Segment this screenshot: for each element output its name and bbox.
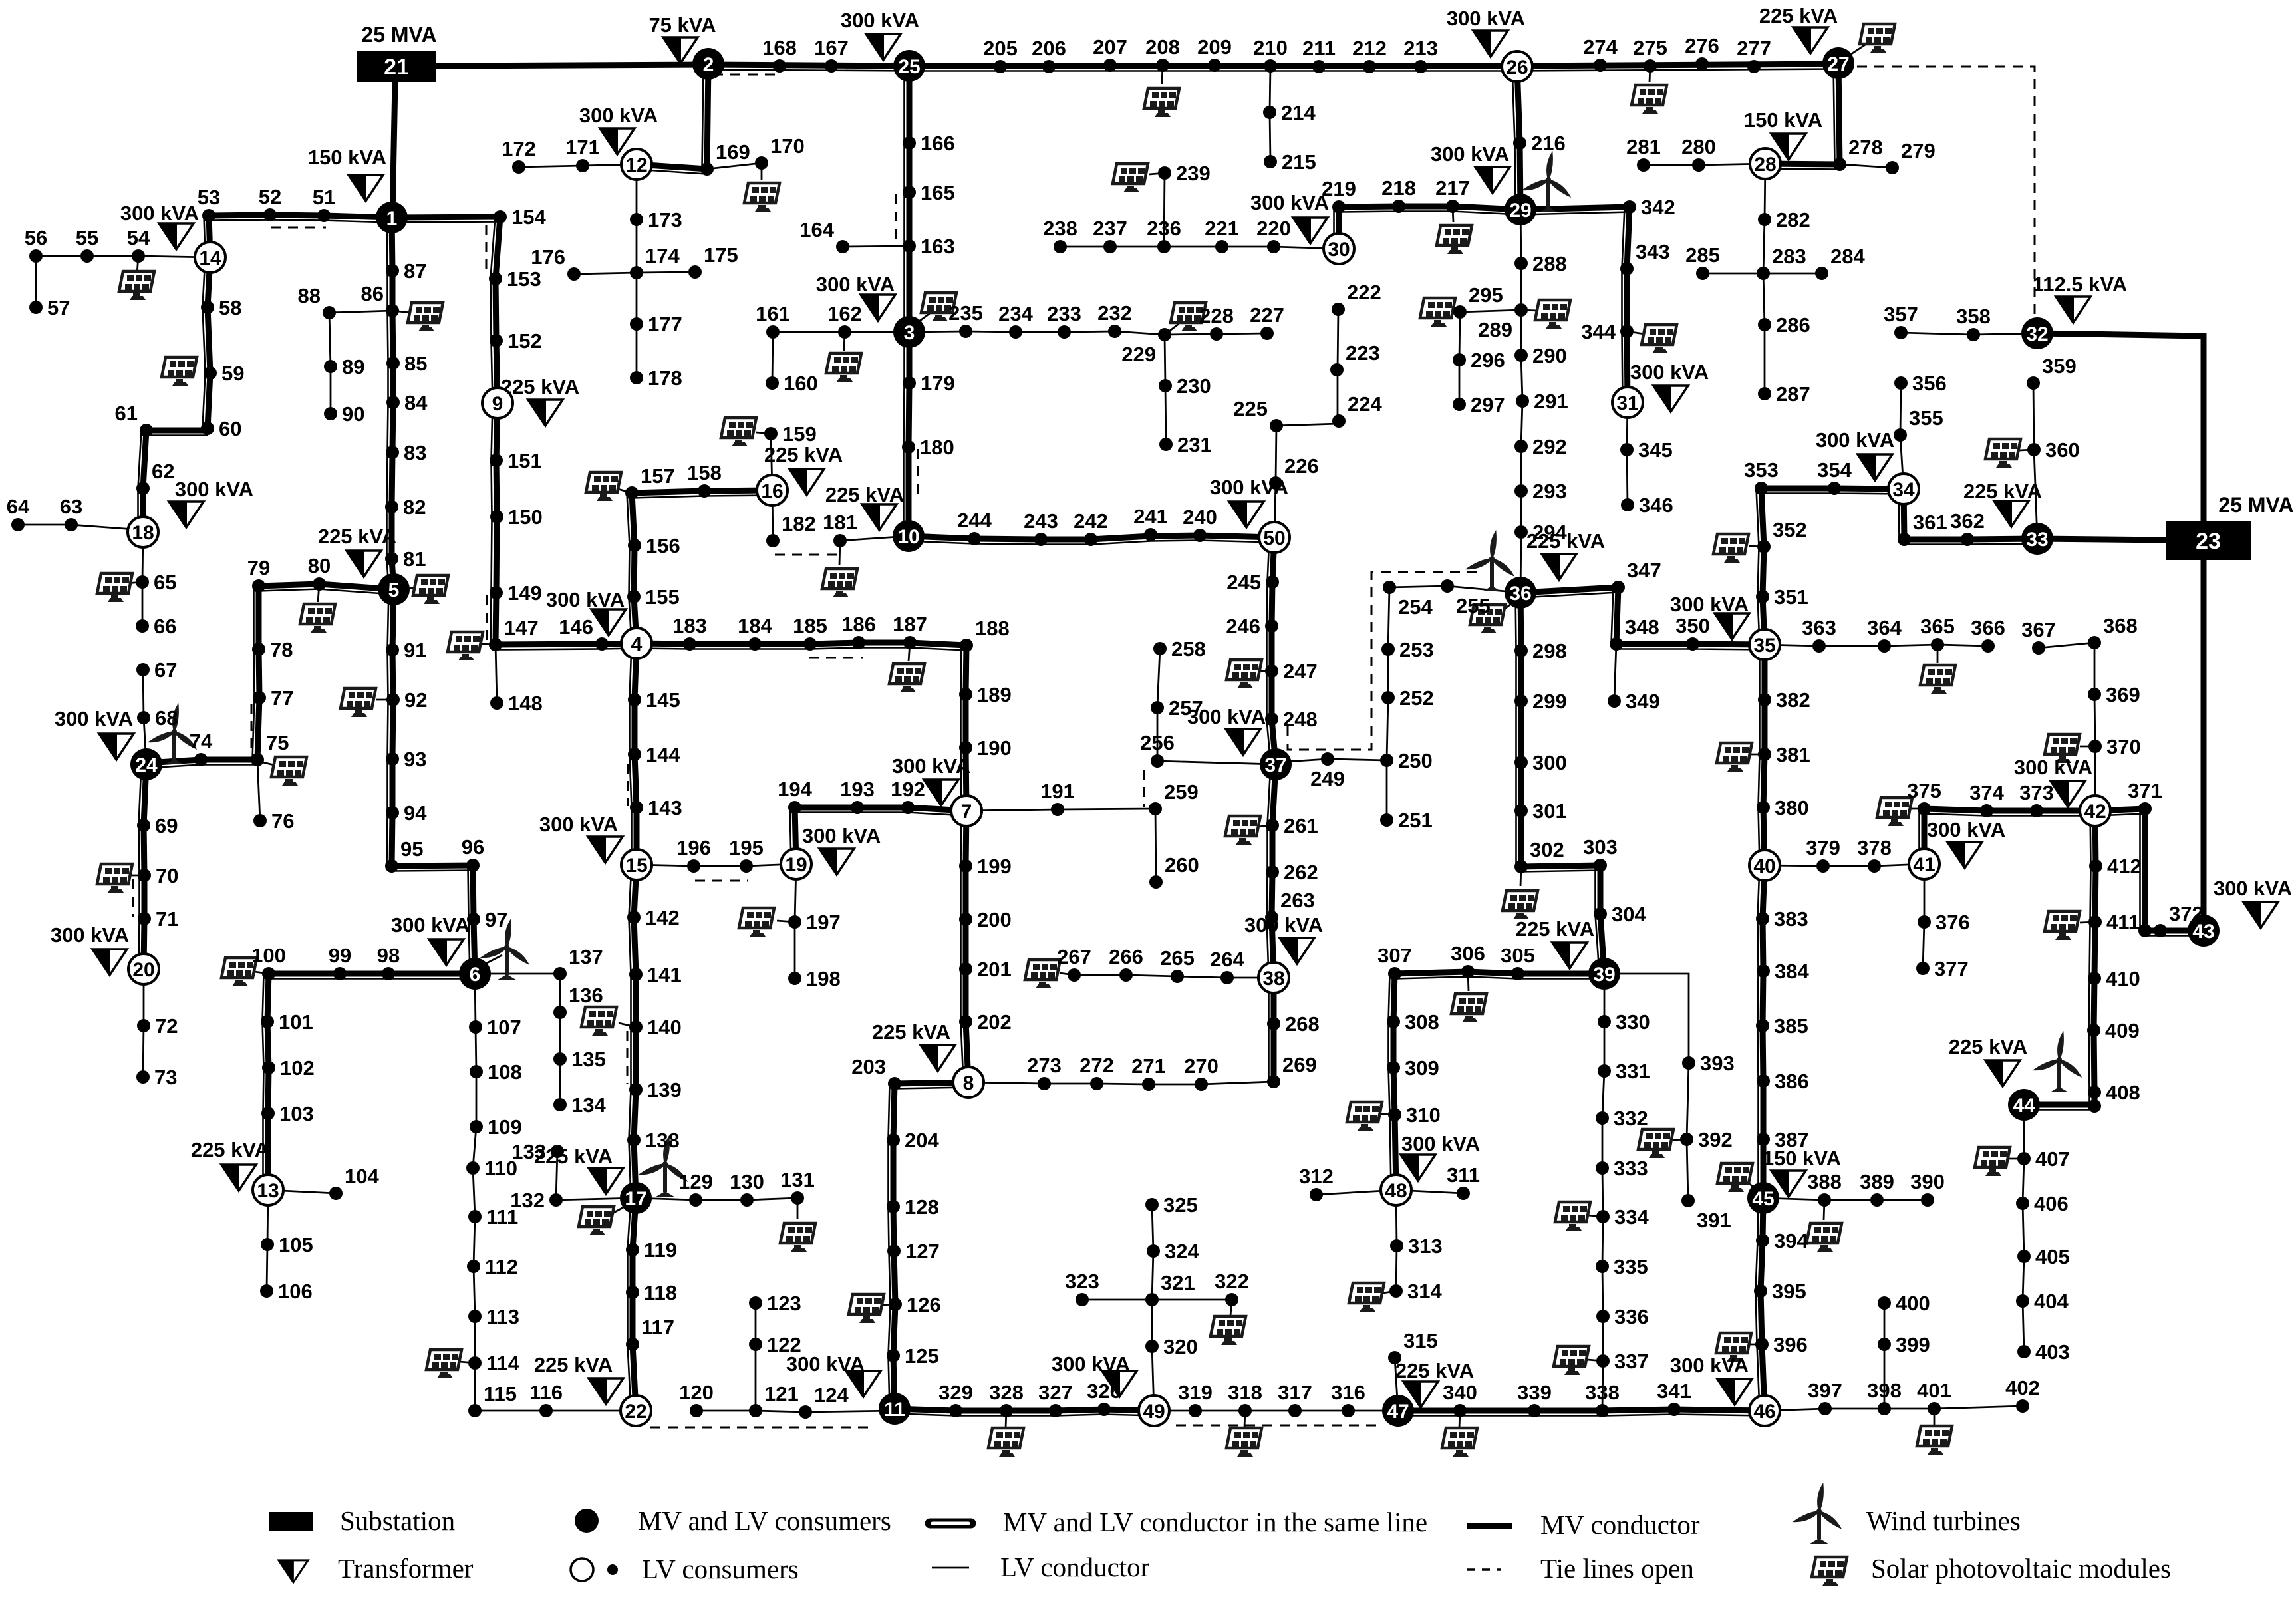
svg-text:59: 59 — [221, 362, 244, 385]
svg-text:169: 169 — [716, 140, 750, 164]
svg-text:260: 260 — [1165, 853, 1199, 877]
svg-text:371: 371 — [2128, 779, 2162, 802]
svg-text:388: 388 — [1807, 1170, 1842, 1193]
svg-text:225 kVA: 225 kVA — [1949, 1035, 2027, 1058]
svg-text:102: 102 — [280, 1056, 315, 1080]
svg-text:276: 276 — [1685, 34, 1719, 57]
svg-text:134: 134 — [571, 1094, 606, 1117]
svg-text:75: 75 — [266, 731, 289, 754]
svg-text:262: 262 — [1284, 861, 1318, 884]
svg-text:202: 202 — [977, 1010, 1012, 1034]
svg-text:10: 10 — [897, 526, 919, 548]
svg-text:46: 46 — [1753, 1401, 1775, 1423]
svg-text:264: 264 — [1210, 948, 1244, 971]
svg-text:38: 38 — [1262, 968, 1284, 990]
svg-text:280: 280 — [1681, 135, 1716, 158]
svg-text:112: 112 — [485, 1255, 518, 1278]
svg-text:401: 401 — [1917, 1379, 1951, 1402]
svg-text:109: 109 — [488, 1115, 522, 1139]
svg-text:130: 130 — [730, 1170, 764, 1193]
svg-text:315: 315 — [1403, 1329, 1438, 1352]
svg-text:336: 336 — [1614, 1305, 1649, 1328]
svg-text:84: 84 — [404, 391, 428, 414]
svg-text:210: 210 — [1253, 36, 1288, 59]
svg-text:311: 311 — [1447, 1163, 1480, 1187]
svg-text:391: 391 — [1697, 1209, 1731, 1232]
svg-text:361: 361 — [1913, 511, 1947, 534]
svg-text:40: 40 — [1753, 855, 1775, 877]
svg-text:225 kVA: 225 kVA — [825, 483, 904, 506]
svg-text:207: 207 — [1093, 35, 1127, 59]
svg-text:286: 286 — [1776, 313, 1810, 337]
svg-text:363: 363 — [1802, 616, 1836, 639]
svg-text:200: 200 — [977, 908, 1012, 931]
svg-text:178: 178 — [648, 366, 682, 390]
svg-text:30: 30 — [1328, 239, 1350, 261]
svg-text:225 kVA: 225 kVA — [1516, 917, 1594, 941]
svg-text:225 kVA: 225 kVA — [534, 1353, 613, 1376]
svg-text:88: 88 — [298, 284, 321, 307]
svg-text:221: 221 — [1205, 217, 1239, 240]
svg-text:67: 67 — [154, 658, 177, 682]
svg-text:170: 170 — [770, 134, 805, 158]
svg-text:332: 332 — [1614, 1107, 1648, 1130]
svg-text:249: 249 — [1310, 767, 1345, 790]
svg-text:143: 143 — [648, 796, 682, 819]
svg-text:17: 17 — [625, 1188, 646, 1210]
svg-text:154: 154 — [511, 206, 546, 229]
svg-text:335: 335 — [1614, 1255, 1648, 1278]
svg-text:25 MVA: 25 MVA — [2218, 493, 2293, 517]
svg-text:33: 33 — [2026, 529, 2048, 551]
svg-text:225 kVA: 225 kVA — [1963, 480, 2042, 503]
svg-text:261: 261 — [1284, 814, 1318, 837]
svg-text:186: 186 — [841, 613, 876, 636]
svg-text:203: 203 — [851, 1055, 886, 1078]
svg-text:292: 292 — [1532, 435, 1567, 458]
svg-text:113: 113 — [486, 1305, 519, 1328]
svg-text:305: 305 — [1501, 944, 1535, 967]
svg-text:225 kVA: 225 kVA — [501, 375, 579, 398]
svg-text:297: 297 — [1471, 393, 1505, 416]
svg-text:217: 217 — [1435, 176, 1470, 200]
svg-text:24: 24 — [135, 754, 158, 776]
svg-text:47: 47 — [1387, 1401, 1409, 1423]
svg-text:69: 69 — [155, 814, 178, 837]
svg-text:197: 197 — [806, 911, 841, 934]
svg-text:205: 205 — [983, 37, 1018, 60]
svg-text:9: 9 — [492, 393, 503, 415]
svg-text:384: 384 — [1775, 960, 1809, 983]
svg-text:150 kVA: 150 kVA — [308, 146, 386, 169]
svg-text:65: 65 — [154, 571, 176, 594]
svg-text:158: 158 — [687, 461, 722, 484]
svg-text:220: 220 — [1256, 217, 1291, 240]
svg-text:157: 157 — [641, 464, 675, 488]
svg-text:247: 247 — [1283, 660, 1318, 683]
svg-text:6: 6 — [470, 964, 481, 986]
svg-text:329: 329 — [938, 1381, 973, 1404]
svg-text:86: 86 — [361, 282, 384, 305]
svg-text:104: 104 — [345, 1165, 379, 1188]
svg-text:152: 152 — [507, 329, 542, 353]
svg-text:242: 242 — [1074, 510, 1108, 533]
svg-text:7: 7 — [961, 801, 972, 823]
svg-text:108: 108 — [488, 1060, 522, 1084]
svg-text:346: 346 — [1639, 494, 1673, 517]
svg-text:411: 411 — [2106, 911, 2140, 934]
svg-text:56: 56 — [25, 226, 47, 249]
svg-text:25: 25 — [898, 56, 920, 78]
svg-text:273: 273 — [1027, 1054, 1062, 1077]
svg-text:370: 370 — [2106, 735, 2141, 758]
svg-text:171: 171 — [565, 136, 600, 159]
svg-text:269: 269 — [1282, 1053, 1317, 1076]
svg-text:37: 37 — [1264, 754, 1286, 776]
svg-text:300 kVA: 300 kVA — [120, 202, 199, 225]
svg-text:32: 32 — [2026, 323, 2048, 345]
svg-text:201: 201 — [977, 958, 1012, 981]
svg-text:98: 98 — [377, 944, 400, 967]
svg-text:358: 358 — [1956, 305, 1991, 328]
svg-text:325: 325 — [1163, 1193, 1198, 1217]
svg-text:179: 179 — [921, 372, 955, 395]
svg-text:293: 293 — [1532, 480, 1567, 503]
svg-text:360: 360 — [2045, 438, 2080, 462]
svg-text:271: 271 — [1131, 1054, 1166, 1078]
svg-text:68: 68 — [155, 706, 178, 730]
svg-text:62: 62 — [152, 460, 174, 483]
svg-text:85: 85 — [404, 352, 427, 375]
svg-text:55: 55 — [76, 226, 98, 249]
svg-text:351: 351 — [1774, 585, 1808, 609]
svg-text:192: 192 — [891, 778, 925, 801]
svg-text:97: 97 — [485, 908, 507, 931]
svg-text:127: 127 — [905, 1240, 940, 1263]
svg-text:148: 148 — [508, 692, 543, 715]
svg-text:285: 285 — [1685, 243, 1720, 267]
svg-text:132: 132 — [510, 1189, 545, 1212]
svg-text:36: 36 — [1509, 583, 1531, 605]
svg-text:399: 399 — [1896, 1333, 1930, 1356]
svg-text:339: 339 — [1517, 1381, 1552, 1404]
svg-text:381: 381 — [1776, 743, 1810, 766]
svg-text:188: 188 — [975, 617, 1010, 640]
svg-text:227: 227 — [1250, 303, 1284, 327]
svg-text:225: 225 — [1233, 397, 1268, 420]
svg-text:60: 60 — [219, 417, 241, 440]
svg-text:196: 196 — [676, 836, 711, 859]
svg-text:75 kVA: 75 kVA — [648, 13, 716, 37]
svg-text:175: 175 — [704, 243, 738, 267]
svg-text:340: 340 — [1443, 1381, 1477, 1404]
svg-text:300 kVA: 300 kVA — [1670, 1354, 1749, 1377]
svg-text:368: 368 — [2103, 614, 2138, 637]
svg-text:72: 72 — [155, 1014, 178, 1038]
svg-text:345: 345 — [1638, 438, 1673, 462]
svg-text:61: 61 — [115, 402, 138, 425]
svg-text:244: 244 — [957, 509, 992, 532]
svg-text:95: 95 — [400, 837, 423, 861]
svg-text:352: 352 — [1773, 518, 1807, 541]
svg-text:MV and LV consumers: MV and LV consumers — [638, 1505, 891, 1536]
svg-text:90: 90 — [342, 402, 364, 426]
svg-text:334: 334 — [1614, 1205, 1649, 1229]
svg-text:209: 209 — [1197, 35, 1232, 59]
svg-text:295: 295 — [1469, 283, 1503, 307]
svg-text:374: 374 — [1969, 781, 2004, 804]
svg-text:237: 237 — [1093, 217, 1127, 240]
svg-text:265: 265 — [1160, 947, 1195, 970]
svg-text:44: 44 — [2013, 1095, 2035, 1117]
svg-text:228: 228 — [1199, 304, 1234, 327]
svg-text:256: 256 — [1140, 731, 1175, 754]
svg-text:268: 268 — [1285, 1012, 1320, 1036]
svg-text:300 kVA: 300 kVA — [1816, 428, 1894, 452]
svg-text:58: 58 — [219, 296, 241, 319]
svg-text:128: 128 — [905, 1195, 939, 1219]
svg-text:76: 76 — [271, 809, 294, 833]
svg-text:284: 284 — [1830, 245, 1865, 268]
svg-text:150 kVA: 150 kVA — [1744, 108, 1822, 132]
svg-text:114: 114 — [486, 1352, 520, 1375]
svg-text:250: 250 — [1398, 749, 1433, 772]
svg-text:14: 14 — [199, 247, 221, 269]
svg-text:74: 74 — [190, 730, 213, 753]
svg-text:300 kVA: 300 kVA — [1401, 1132, 1480, 1155]
svg-text:140: 140 — [647, 1016, 682, 1039]
svg-text:48: 48 — [1385, 1180, 1407, 1202]
svg-text:301: 301 — [1532, 800, 1567, 823]
svg-text:397: 397 — [1808, 1379, 1842, 1402]
svg-text:31: 31 — [1616, 392, 1638, 414]
svg-text:288: 288 — [1532, 252, 1567, 275]
svg-text:303: 303 — [1583, 835, 1618, 859]
svg-text:Wind turbines: Wind turbines — [1866, 1505, 2021, 1536]
svg-text:141: 141 — [647, 963, 682, 986]
svg-text:177: 177 — [648, 313, 682, 336]
svg-text:45: 45 — [1752, 1188, 1774, 1210]
svg-text:27: 27 — [1827, 53, 1849, 75]
svg-text:41: 41 — [1913, 854, 1935, 876]
svg-text:34: 34 — [1892, 479, 1915, 501]
svg-text:300 kVA: 300 kVA — [1052, 1352, 1130, 1376]
svg-text:115: 115 — [484, 1382, 517, 1405]
svg-text:219: 219 — [1322, 177, 1356, 200]
svg-text:308: 308 — [1405, 1010, 1439, 1034]
svg-text:39: 39 — [1593, 964, 1615, 986]
svg-text:43: 43 — [2192, 921, 2214, 943]
svg-text:300 kVA: 300 kVA — [579, 104, 658, 127]
svg-text:119: 119 — [644, 1239, 677, 1262]
svg-text:126: 126 — [907, 1293, 941, 1316]
svg-text:373: 373 — [2019, 781, 2054, 804]
svg-text:406: 406 — [2034, 1192, 2069, 1215]
svg-text:300 kVA: 300 kVA — [55, 707, 133, 730]
svg-text:410: 410 — [2106, 967, 2140, 990]
svg-text:233: 233 — [1047, 302, 1081, 325]
svg-text:236: 236 — [1147, 217, 1181, 240]
svg-text:25 MVA: 25 MVA — [361, 23, 436, 47]
svg-text:225 kVA: 225 kVA — [1759, 4, 1838, 27]
svg-text:222: 222 — [1347, 281, 1381, 304]
svg-text:367: 367 — [2021, 618, 2056, 641]
svg-text:213: 213 — [1403, 37, 1438, 60]
svg-text:407: 407 — [2035, 1147, 2070, 1171]
svg-text:300 kVA: 300 kVA — [1447, 7, 1525, 30]
svg-text:300 kVA: 300 kVA — [1250, 191, 1329, 214]
svg-text:386: 386 — [1775, 1070, 1809, 1093]
svg-text:125: 125 — [905, 1344, 939, 1368]
svg-text:254: 254 — [1398, 595, 1433, 619]
svg-text:52: 52 — [259, 185, 281, 208]
svg-text:82: 82 — [403, 496, 426, 519]
svg-text:223: 223 — [1346, 341, 1380, 365]
svg-text:354: 354 — [1817, 458, 1852, 482]
svg-text:23: 23 — [2196, 529, 2221, 554]
svg-text:302: 302 — [1530, 838, 1564, 861]
svg-text:348: 348 — [1625, 615, 1659, 639]
svg-text:198: 198 — [806, 967, 841, 990]
svg-text:225 kVA: 225 kVA — [764, 443, 843, 466]
svg-text:64: 64 — [7, 495, 30, 518]
svg-text:168: 168 — [762, 36, 797, 59]
svg-text:282: 282 — [1776, 208, 1810, 231]
svg-text:392: 392 — [1698, 1128, 1733, 1151]
svg-text:300 kVA: 300 kVA — [802, 824, 881, 847]
svg-text:253: 253 — [1399, 638, 1434, 661]
svg-text:231: 231 — [1177, 433, 1212, 456]
svg-text:160: 160 — [784, 372, 818, 395]
svg-text:199: 199 — [977, 855, 1012, 878]
svg-text:300 kVA: 300 kVA — [51, 923, 129, 947]
svg-text:245: 245 — [1226, 571, 1261, 594]
svg-text:239: 239 — [1176, 162, 1211, 185]
svg-text:66: 66 — [154, 615, 176, 638]
svg-text:153: 153 — [507, 267, 541, 291]
svg-text:380: 380 — [1775, 796, 1809, 819]
svg-text:394: 394 — [1774, 1229, 1808, 1252]
svg-text:350: 350 — [1675, 614, 1710, 637]
svg-text:300 kVA: 300 kVA — [1927, 818, 2005, 841]
svg-text:300 kVA: 300 kVA — [539, 813, 618, 836]
svg-text:77: 77 — [271, 686, 293, 710]
svg-text:138: 138 — [645, 1129, 680, 1152]
svg-text:206: 206 — [1032, 37, 1066, 60]
svg-text:314: 314 — [1407, 1280, 1442, 1303]
svg-text:133: 133 — [511, 1140, 546, 1163]
svg-text:248: 248 — [1283, 708, 1318, 731]
svg-text:147: 147 — [504, 616, 539, 639]
svg-text:313: 313 — [1408, 1235, 1443, 1258]
svg-text:299: 299 — [1532, 690, 1567, 713]
svg-text:185: 185 — [793, 614, 827, 637]
svg-text:355: 355 — [1909, 406, 1943, 430]
svg-text:190: 190 — [977, 736, 1012, 760]
svg-text:263: 263 — [1280, 889, 1315, 912]
svg-text:252: 252 — [1399, 686, 1434, 710]
svg-text:230: 230 — [1177, 374, 1211, 398]
svg-text:53: 53 — [198, 186, 220, 209]
svg-text:300 kVA: 300 kVA — [1244, 913, 1323, 937]
svg-text:225 kVA: 225 kVA — [318, 525, 396, 548]
svg-text:289: 289 — [1478, 318, 1512, 341]
svg-text:70: 70 — [156, 864, 178, 887]
svg-text:29: 29 — [1509, 200, 1531, 221]
svg-text:87: 87 — [404, 259, 426, 283]
svg-text:389: 389 — [1860, 1170, 1894, 1193]
svg-text:224: 224 — [1348, 392, 1382, 416]
svg-text:LV conductor: LV conductor — [1000, 1552, 1150, 1582]
svg-text:225 kVA: 225 kVA — [872, 1020, 950, 1044]
svg-text:20: 20 — [132, 959, 154, 981]
svg-text:13: 13 — [257, 1180, 279, 1202]
svg-text:383: 383 — [1774, 907, 1808, 931]
svg-text:251: 251 — [1398, 809, 1433, 832]
svg-text:323: 323 — [1065, 1270, 1099, 1293]
svg-text:378: 378 — [1857, 836, 1892, 859]
svg-text:330: 330 — [1616, 1010, 1650, 1034]
svg-text:4: 4 — [631, 633, 643, 655]
svg-text:300 kVA: 300 kVA — [2214, 877, 2292, 900]
svg-text:300 kVA: 300 kVA — [546, 588, 625, 611]
svg-text:150: 150 — [508, 506, 543, 529]
svg-text:184: 184 — [738, 614, 772, 637]
svg-text:50: 50 — [1263, 527, 1285, 549]
svg-text:Substation: Substation — [340, 1505, 455, 1536]
svg-text:19: 19 — [785, 854, 807, 876]
svg-text:191: 191 — [1040, 780, 1075, 803]
svg-text:106: 106 — [278, 1280, 313, 1303]
svg-text:216: 216 — [1531, 132, 1566, 155]
svg-text:129: 129 — [678, 1170, 713, 1193]
svg-text:266: 266 — [1109, 945, 1143, 968]
svg-text:180: 180 — [920, 436, 954, 459]
svg-text:155: 155 — [645, 585, 680, 609]
svg-text:MV conductor: MV conductor — [1540, 1509, 1700, 1540]
svg-text:131: 131 — [780, 1168, 815, 1191]
svg-text:81: 81 — [403, 547, 426, 571]
svg-text:396: 396 — [1773, 1333, 1808, 1356]
svg-text:51: 51 — [313, 186, 335, 209]
svg-text:Solar photovoltaic modules: Solar photovoltaic modules — [1871, 1553, 2171, 1584]
svg-text:107: 107 — [487, 1016, 521, 1039]
svg-text:225 kVA: 225 kVA — [1395, 1359, 1474, 1382]
svg-text:300 kVA: 300 kVA — [1431, 142, 1509, 166]
svg-text:279: 279 — [1901, 139, 1936, 162]
svg-text:73: 73 — [154, 1066, 177, 1089]
svg-text:326: 326 — [1087, 1380, 1121, 1403]
svg-text:161: 161 — [756, 302, 790, 325]
svg-text:149: 149 — [507, 581, 542, 605]
svg-text:79: 79 — [247, 556, 270, 579]
svg-text:300 kVA: 300 kVA — [391, 913, 470, 937]
svg-text:317: 317 — [1278, 1381, 1312, 1404]
svg-text:400: 400 — [1896, 1292, 1930, 1315]
svg-text:42: 42 — [2084, 801, 2106, 823]
svg-text:366: 366 — [1971, 616, 2005, 639]
svg-text:212: 212 — [1352, 37, 1387, 60]
svg-text:300 kVA: 300 kVA — [1670, 593, 1749, 616]
svg-text:296: 296 — [1471, 349, 1505, 372]
svg-text:300 kVA: 300 kVA — [841, 9, 919, 32]
svg-text:99: 99 — [329, 944, 351, 967]
svg-text:117: 117 — [641, 1316, 674, 1339]
svg-text:300 kVA: 300 kVA — [892, 754, 970, 778]
svg-text:277: 277 — [1737, 37, 1771, 60]
svg-text:11: 11 — [884, 1399, 905, 1421]
svg-text:298: 298 — [1532, 639, 1567, 662]
